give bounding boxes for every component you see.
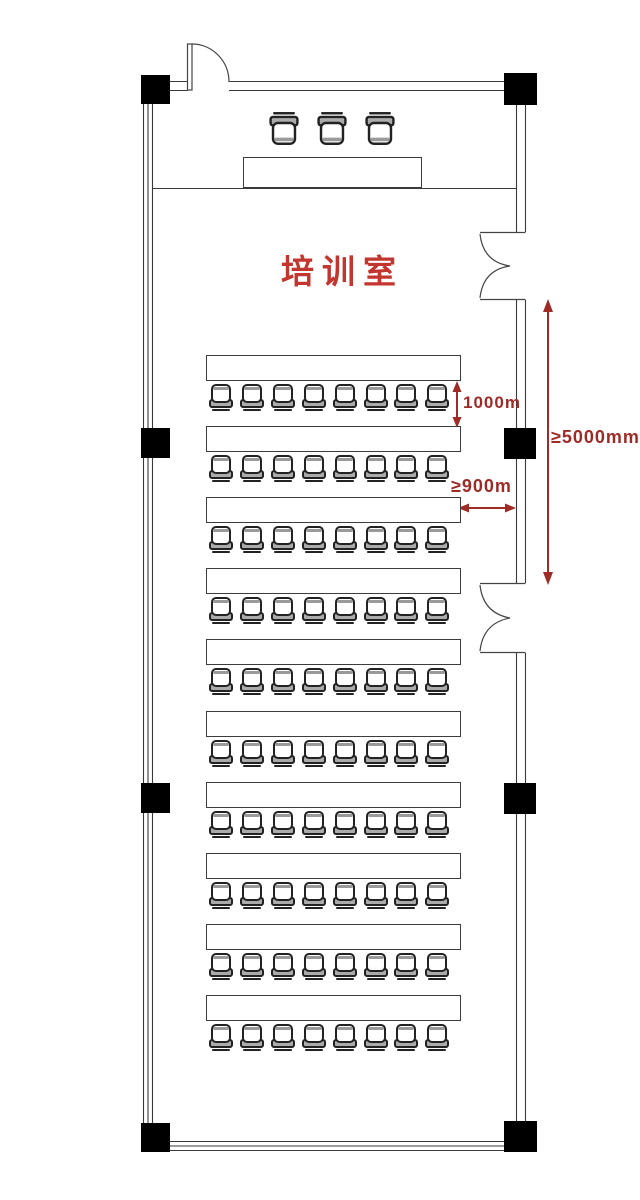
chair-foot [305, 693, 323, 695]
chair-seat [273, 597, 293, 616]
chair-seat [335, 526, 355, 545]
training-table [206, 639, 461, 665]
aisle-width-label: ≥900m [451, 477, 512, 495]
chair-icon [425, 740, 449, 767]
chair-seat [304, 811, 324, 830]
chair-seat [427, 953, 447, 972]
chair-seat [427, 384, 447, 403]
chair-seat [427, 526, 447, 545]
chair-seat [211, 597, 231, 616]
chair-icon [394, 740, 418, 767]
chair-foot [274, 693, 292, 695]
chair-foot [212, 480, 230, 482]
chair-foot [305, 480, 323, 482]
chair-icon [240, 526, 264, 553]
training-table [206, 924, 461, 950]
chair-icon [394, 953, 418, 980]
chair-seat [304, 740, 324, 759]
chair-seat [368, 122, 392, 145]
chair-seat [211, 811, 231, 830]
door-swing-arcs [480, 234, 510, 298]
chair-icon [394, 1024, 418, 1051]
chair-icon [209, 740, 233, 767]
chair-foot [243, 622, 261, 624]
chair-foot [305, 551, 323, 553]
chair-icon [333, 953, 357, 980]
chair-foot [243, 480, 261, 482]
chair-foot [336, 693, 354, 695]
chair-foot [428, 836, 446, 838]
chair-icon [425, 1024, 449, 1051]
chair-icon [333, 1024, 357, 1051]
chair-seat [366, 455, 386, 474]
chair-foot [305, 907, 323, 909]
exit-distance-label: ≥5000mm [551, 428, 640, 446]
row-depth-label: 1000m [463, 394, 521, 411]
chair-seat [427, 1024, 447, 1043]
dimension-arrows [453, 299, 554, 585]
door-leaf [188, 44, 193, 90]
chair-foot [397, 622, 415, 624]
chair-icon [302, 953, 326, 980]
chair-foot [243, 693, 261, 695]
chair-icon [240, 384, 264, 411]
chair-foot [305, 978, 323, 980]
chair-icon [333, 811, 357, 838]
chair-foot [428, 622, 446, 624]
training-room-floor-plan: 培训室 1000m ≥900m ≥5000mm [0, 0, 640, 1200]
column-bottom-right [504, 1121, 537, 1152]
chair-foot [274, 480, 292, 482]
chair-foot [212, 1049, 230, 1051]
chair-icon [394, 668, 418, 695]
chair-seat [242, 811, 262, 830]
chair-foot [428, 480, 446, 482]
chair-seat [335, 811, 355, 830]
chair-seat [211, 882, 231, 901]
chair-seat [273, 882, 293, 901]
chair-foot [243, 978, 261, 980]
chair-foot [336, 622, 354, 624]
left-wall [144, 75, 153, 1152]
training-table [206, 426, 461, 452]
training-table [206, 497, 461, 523]
chair-icon [333, 455, 357, 482]
chair-seat [396, 597, 416, 616]
chair-seat [242, 740, 262, 759]
chair-icon [333, 740, 357, 767]
chair-foot [336, 409, 354, 411]
chair-icon [271, 597, 295, 624]
chair-icon [364, 740, 388, 767]
chair-foot [367, 765, 385, 767]
chair-seat [366, 882, 386, 901]
chair-seat [396, 384, 416, 403]
chair-icon [394, 811, 418, 838]
chair-icon [271, 668, 295, 695]
chair-seat [396, 455, 416, 474]
chair-foot [336, 765, 354, 767]
chair-icon [209, 811, 233, 838]
door-swing-arcs [480, 585, 510, 651]
chair-foot [274, 409, 292, 411]
chair-foot [243, 836, 261, 838]
chair-seat [396, 668, 416, 687]
chair-foot [367, 978, 385, 980]
chair-foot [336, 480, 354, 482]
chair-seat [366, 384, 386, 403]
chair-icon [425, 455, 449, 482]
chair-seat [396, 882, 416, 901]
chair-icon [209, 882, 233, 909]
chair-foot [428, 978, 446, 980]
chair-seat [335, 953, 355, 972]
chair-icon [425, 668, 449, 695]
chair-icon [240, 668, 264, 695]
chair-seat [335, 384, 355, 403]
chair-icon [425, 811, 449, 838]
chair-icon [394, 455, 418, 482]
chair-seat [242, 953, 262, 972]
chair-seat [211, 1024, 231, 1043]
chair-seat [335, 1024, 355, 1043]
chair-icon [240, 953, 264, 980]
training-table [206, 711, 461, 737]
chair-seat [366, 953, 386, 972]
chair-foot [336, 551, 354, 553]
chair-seat [366, 811, 386, 830]
chair-seat [304, 526, 324, 545]
chair-foot [428, 765, 446, 767]
chair-foot [336, 978, 354, 980]
chair-foot [274, 765, 292, 767]
chair-icon [364, 384, 388, 411]
chair-foot [274, 551, 292, 553]
chair-icon [271, 740, 295, 767]
chair-icon [271, 811, 295, 838]
dimension-arrow-row-depth [453, 381, 462, 428]
chair-foot [397, 978, 415, 980]
dimension-arrow-aisle-width [458, 504, 516, 513]
chair-seat [304, 384, 324, 403]
chair-foot [212, 409, 230, 411]
chair-foot [305, 622, 323, 624]
chair-foot [367, 907, 385, 909]
chair-foot [367, 693, 385, 695]
chair-seat [366, 597, 386, 616]
chair-seat [304, 1024, 324, 1043]
chair-foot [336, 907, 354, 909]
chair-seat [396, 811, 416, 830]
training-table [206, 568, 461, 594]
chair-seat [320, 122, 344, 145]
double-door-upper-right [480, 233, 526, 300]
chair-icon [425, 882, 449, 909]
chair-icon [271, 455, 295, 482]
chair-icon [209, 526, 233, 553]
chair-foot [212, 765, 230, 767]
chair-icon [302, 1024, 326, 1051]
chair-foot [336, 836, 354, 838]
column-bottom-left [141, 1123, 170, 1152]
chair-foot [274, 907, 292, 909]
column-mid2-left [141, 783, 170, 813]
chair-foot [397, 480, 415, 482]
chair-foot [428, 693, 446, 695]
chair-seat [242, 526, 262, 545]
chair-foot [369, 112, 391, 114]
chair-seat [211, 953, 231, 972]
chair-seat [335, 668, 355, 687]
column-top-right [504, 73, 537, 105]
chair-icon [394, 597, 418, 624]
bottom-wall [142, 1142, 537, 1151]
chair-seat [211, 740, 231, 759]
chair-seat [396, 953, 416, 972]
chair-foot [274, 622, 292, 624]
entry-door-top-left [188, 44, 230, 90]
chair-icon [240, 1024, 264, 1051]
chair-seat [242, 668, 262, 687]
chair-icon [302, 882, 326, 909]
chair-seat [335, 740, 355, 759]
chair-icon [240, 882, 264, 909]
chair-icon [365, 112, 394, 145]
column-mid1-right [504, 428, 536, 459]
chair-seat [304, 668, 324, 687]
door-jambs [480, 233, 526, 300]
chair-foot [305, 409, 323, 411]
door-jambs [480, 584, 526, 653]
training-table [206, 782, 461, 808]
chair-foot [305, 836, 323, 838]
chair-icon [425, 597, 449, 624]
chair-seat [211, 455, 231, 474]
chair-seat [335, 882, 355, 901]
chair-icon [209, 1024, 233, 1051]
chair-seat [273, 811, 293, 830]
chair-seat [366, 668, 386, 687]
chair-foot [243, 765, 261, 767]
column-mid2-right [504, 783, 536, 814]
chair-icon [209, 597, 233, 624]
chair-icon [425, 953, 449, 980]
chair-foot [397, 551, 415, 553]
chair-seat [304, 455, 324, 474]
chair-foot [243, 409, 261, 411]
chair-icon [302, 455, 326, 482]
chair-seat [427, 882, 447, 901]
chair-icon [271, 526, 295, 553]
chair-seat [273, 455, 293, 474]
chair-foot [397, 1049, 415, 1051]
chair-icon [271, 1024, 295, 1051]
chair-foot [305, 1049, 323, 1051]
chair-icon [394, 526, 418, 553]
chair-seat [211, 526, 231, 545]
chair-icon [209, 455, 233, 482]
chair-foot [212, 978, 230, 980]
chair-foot [397, 693, 415, 695]
chair-icon [271, 953, 295, 980]
chair-seat [366, 1024, 386, 1043]
chair-seat [242, 1024, 262, 1043]
chair-foot [212, 693, 230, 695]
chair-seat [273, 953, 293, 972]
chair-foot [428, 1049, 446, 1051]
chair-icon [302, 526, 326, 553]
chair-icon [333, 668, 357, 695]
chair-icon [333, 526, 357, 553]
chair-foot [367, 551, 385, 553]
chair-icon [364, 1024, 388, 1051]
column-mid1-left [141, 428, 170, 458]
chair-icon [209, 668, 233, 695]
chair-icon [240, 455, 264, 482]
training-table [206, 995, 461, 1021]
chair-seat [304, 882, 324, 901]
chair-icon [394, 882, 418, 909]
chair-icon [302, 740, 326, 767]
chair-foot [336, 1049, 354, 1051]
chair-icon [302, 668, 326, 695]
chair-seat [427, 740, 447, 759]
chair-foot [367, 836, 385, 838]
chair-icon [269, 112, 298, 145]
chair-icon [364, 953, 388, 980]
chair-seat [396, 1024, 416, 1043]
chair-foot [305, 765, 323, 767]
chair-icon [271, 384, 295, 411]
chair-icon [240, 597, 264, 624]
training-table [206, 853, 461, 879]
chair-foot [212, 907, 230, 909]
chair-icon [240, 740, 264, 767]
chair-seat [304, 597, 324, 616]
chair-foot [428, 409, 446, 411]
column-top-left [141, 75, 170, 104]
chair-icon [209, 384, 233, 411]
chair-foot [397, 907, 415, 909]
chair-seat [242, 384, 262, 403]
chair-icon [333, 882, 357, 909]
chair-icon [209, 953, 233, 980]
chair-seat [242, 882, 262, 901]
chair-foot [397, 409, 415, 411]
chair-seat [304, 953, 324, 972]
chair-seat [273, 1024, 293, 1043]
chair-foot [212, 622, 230, 624]
double-door-lower-right [480, 584, 526, 653]
chair-icon [302, 384, 326, 411]
top-wall [170, 82, 516, 91]
chair-seat [242, 455, 262, 474]
right-wall [517, 74, 526, 1152]
chair-icon [302, 811, 326, 838]
chair-seat [273, 740, 293, 759]
chair-foot [367, 480, 385, 482]
chair-seat [396, 740, 416, 759]
chair-seat [427, 455, 447, 474]
chair-foot [273, 112, 295, 114]
podium-table [243, 157, 422, 188]
chair-icon [425, 384, 449, 411]
chair-foot [367, 409, 385, 411]
chair-icon [364, 526, 388, 553]
chair-icon [302, 597, 326, 624]
chair-foot [243, 907, 261, 909]
chair-seat [335, 455, 355, 474]
chair-icon [364, 597, 388, 624]
chair-seat [273, 526, 293, 545]
chair-seat [366, 740, 386, 759]
chair-foot [397, 836, 415, 838]
chair-foot [367, 622, 385, 624]
chair-foot [367, 1049, 385, 1051]
chair-icon [364, 882, 388, 909]
chair-seat [366, 526, 386, 545]
chair-foot [212, 551, 230, 553]
chair-foot [274, 1049, 292, 1051]
chair-icon [364, 455, 388, 482]
chair-seat [427, 597, 447, 616]
chair-foot [212, 836, 230, 838]
chair-seat [242, 597, 262, 616]
chair-foot [397, 765, 415, 767]
chair-icon [333, 597, 357, 624]
chair-foot [321, 112, 343, 114]
training-table [206, 355, 461, 381]
chair-icon [425, 526, 449, 553]
door-swing-arc [192, 44, 229, 82]
chair-foot [274, 836, 292, 838]
chair-seat [396, 526, 416, 545]
chair-seat [211, 668, 231, 687]
room-title-label: 培训室 [281, 255, 404, 288]
chair-seat [427, 811, 447, 830]
chair-icon [271, 882, 295, 909]
chair-foot [243, 551, 261, 553]
chair-foot [243, 1049, 261, 1051]
chair-icon [364, 668, 388, 695]
chair-foot [274, 978, 292, 980]
chair-icon [394, 384, 418, 411]
chair-seat [272, 122, 296, 145]
chair-seat [211, 384, 231, 403]
chair-foot [428, 907, 446, 909]
chair-icon [317, 112, 346, 145]
chair-seat [273, 668, 293, 687]
chair-icon [364, 811, 388, 838]
chair-foot [428, 551, 446, 553]
chair-icon [240, 811, 264, 838]
chair-seat [427, 668, 447, 687]
chair-icon [333, 384, 357, 411]
chair-seat [273, 384, 293, 403]
chair-seat [335, 597, 355, 616]
